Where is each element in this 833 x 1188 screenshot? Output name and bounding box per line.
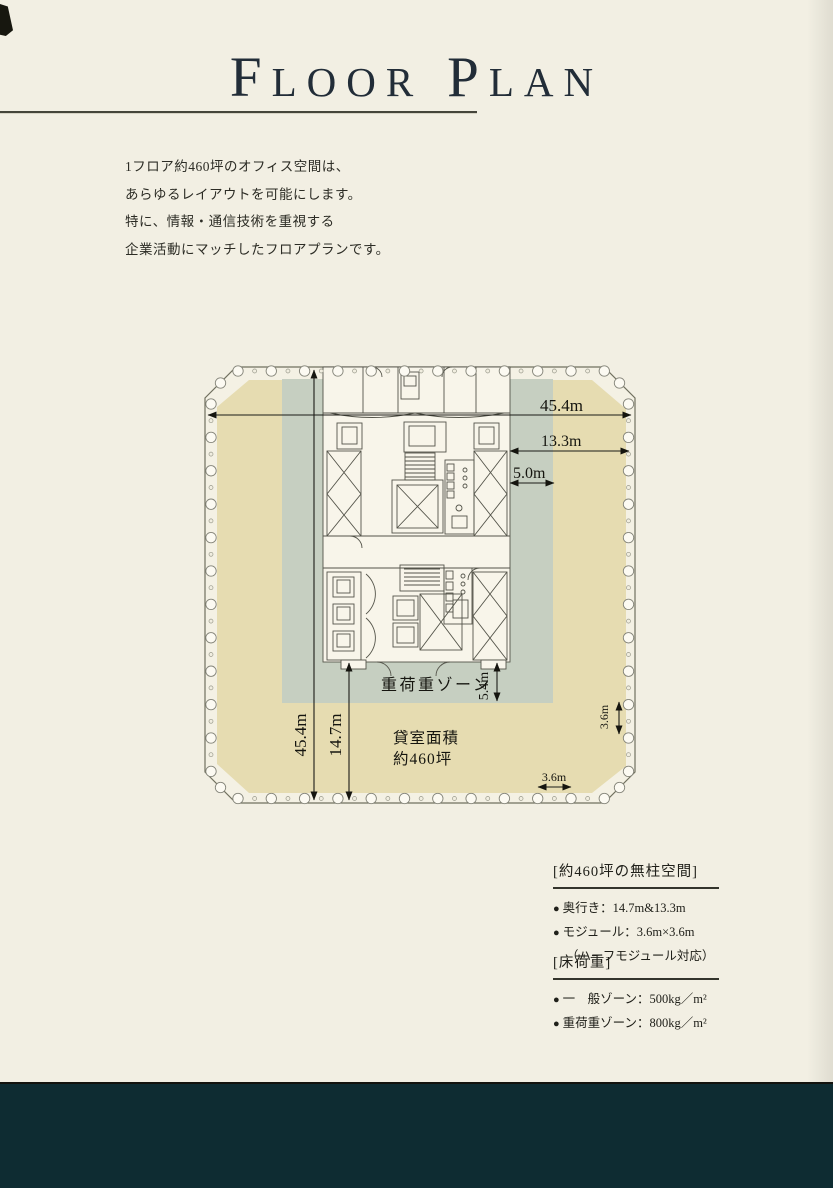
dim-core-depth: 5.0m [513,465,546,482]
building-core [323,367,510,676]
spec-item-heavy-zone: ●重荷重ゾーン：800kg／m² [553,1012,753,1031]
intro-line: 1フロア約460坪のオフィス空間は、 [125,153,390,181]
dim-module-vertical: 3.6m [597,704,611,729]
intro-line: あらゆるレイアウトを可能にします。 [125,181,390,209]
spec-floorload-list: ●一 般ゾーン：500kg／m² ●重荷重ゾーン：800kg／m² [553,988,753,1031]
dim-width-top: 45.4m [540,396,583,415]
spec-item-text: モジュール：3.6m×3.6m [563,921,695,940]
scan-corner-mark [0,4,13,36]
spec-item-text: 重荷重ゾーン：800kg／m² [563,1012,707,1031]
spec-rule [553,887,719,889]
page-title: FLOORPLAN [0,48,833,115]
intro-line: 企業活動にマッチしたフロアプランです。 [125,236,390,264]
spec-rule [553,978,719,980]
title-word-floor: LOOR [272,59,424,105]
intro-text: 1フロア約460坪のオフィス空間は、 あらゆるレイアウトを可能にします。 特に、… [125,153,390,263]
intro-line: 特に、情報・通信技術を重視する [125,208,390,236]
dim-module-horizontal: 3.6m [542,770,567,784]
title-initial-f: F [230,46,272,109]
bullet-icon: ● [553,1018,560,1030]
title-underline [0,111,477,113]
spec-item-text: 一 般ゾーン：500kg／m² [563,988,707,1007]
dim-depth-right: 13.3m [541,433,582,450]
bullet-icon: ● [553,903,560,915]
spec-item-module: ●モジュール：3.6m×3.6m [553,921,753,940]
title-initial-p: P [447,46,489,109]
bullet-icon: ● [553,994,560,1006]
spec-item-general-zone: ●一 般ゾーン：500kg／m² [553,988,753,1007]
spec-item-depth: ●奥行き：14.7m&13.3m [553,897,753,916]
scan-edge-shade [807,0,833,1082]
bullet-icon: ● [553,927,560,939]
spec-columnless-header: [約460坪の無柱空間] [553,860,753,881]
spec-floor-load: [床荷重] ●一 般ゾーン：500kg／m² ●重荷重ゾーン：800kg／m² [553,951,753,1036]
rent-area-label-line2: 約460坪 [393,750,452,768]
dim-depth-bottom: 14.7m [326,714,345,757]
spec-floorload-header: [床荷重] [553,951,753,972]
spec-item-text: 奥行き：14.7m&13.3m [563,897,686,916]
brochure-page: FLOORPLAN 1フロア約460坪のオフィス空間は、 あらゆるレイアウトを可… [0,0,833,1186]
title-word-plan: LAN [489,59,603,105]
dim-height-left: 45.4m [291,714,310,757]
floor-plan-diagram: 45.4m 13.3m 5.0m 45.4m 14.7m 5.4m 3.6m 3… [185,350,655,828]
rent-area-label-line1: 貸室面積 [393,729,459,747]
bottom-band [0,1082,833,1188]
heavy-zone-label: 重荷重ゾーン [381,676,491,694]
